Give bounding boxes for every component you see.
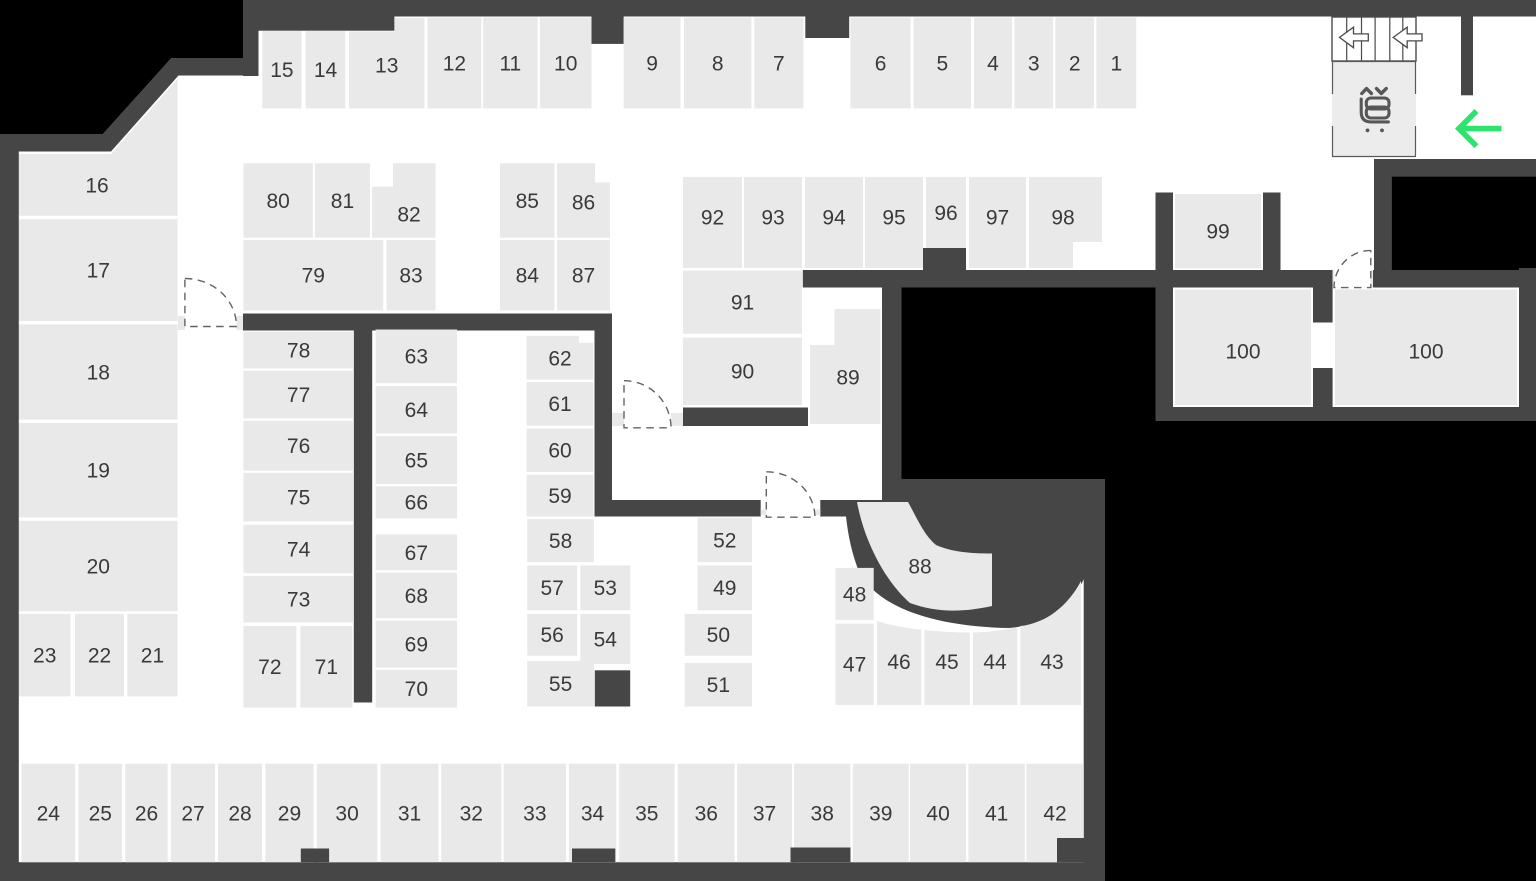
svg-text:42: 42 — [1043, 802, 1066, 825]
svg-text:50: 50 — [707, 624, 730, 647]
svg-text:13: 13 — [375, 54, 398, 77]
svg-text:38: 38 — [811, 802, 834, 825]
svg-text:36: 36 — [695, 802, 718, 825]
svg-text:97: 97 — [986, 206, 1009, 229]
svg-text:8: 8 — [712, 52, 724, 75]
svg-text:23: 23 — [33, 645, 56, 668]
svg-text:49: 49 — [713, 577, 736, 600]
svg-text:99: 99 — [1206, 221, 1229, 244]
svg-text:80: 80 — [266, 190, 289, 213]
svg-text:70: 70 — [405, 678, 428, 701]
svg-text:24: 24 — [37, 802, 61, 825]
svg-text:62: 62 — [548, 347, 571, 370]
svg-text:93: 93 — [761, 206, 784, 229]
svg-text:52: 52 — [713, 529, 736, 552]
svg-text:29: 29 — [278, 802, 301, 825]
svg-text:35: 35 — [635, 802, 658, 825]
svg-text:74: 74 — [287, 538, 311, 561]
svg-text:16: 16 — [85, 174, 108, 197]
svg-text:10: 10 — [554, 52, 577, 75]
svg-text:98: 98 — [1051, 206, 1074, 229]
svg-text:26: 26 — [135, 802, 158, 825]
svg-text:9: 9 — [646, 52, 658, 75]
svg-text:5: 5 — [936, 52, 948, 75]
svg-text:31: 31 — [398, 802, 421, 825]
svg-text:55: 55 — [549, 673, 572, 696]
svg-text:82: 82 — [397, 203, 420, 226]
svg-text:83: 83 — [399, 265, 422, 288]
svg-text:72: 72 — [258, 656, 281, 679]
svg-text:44: 44 — [983, 651, 1007, 674]
svg-text:33: 33 — [523, 802, 546, 825]
svg-text:20: 20 — [87, 555, 110, 578]
svg-text:100: 100 — [1408, 340, 1443, 363]
svg-text:96: 96 — [934, 202, 957, 225]
svg-text:43: 43 — [1040, 651, 1063, 674]
svg-text:100: 100 — [1225, 340, 1260, 363]
svg-text:4: 4 — [987, 52, 999, 75]
svg-text:87: 87 — [572, 265, 595, 288]
svg-text:47: 47 — [843, 654, 866, 677]
svg-text:46: 46 — [887, 651, 910, 674]
svg-text:79: 79 — [302, 265, 325, 288]
svg-text:88: 88 — [908, 555, 931, 578]
svg-text:94: 94 — [822, 206, 846, 229]
svg-text:22: 22 — [88, 645, 111, 668]
svg-text:1: 1 — [1110, 52, 1122, 75]
svg-text:12: 12 — [443, 52, 466, 75]
svg-text:34: 34 — [581, 802, 605, 825]
svg-text:19: 19 — [87, 460, 110, 483]
svg-text:54: 54 — [594, 628, 618, 651]
svg-text:40: 40 — [926, 802, 949, 825]
svg-text:11: 11 — [499, 52, 521, 75]
svg-text:56: 56 — [540, 624, 563, 647]
svg-text:28: 28 — [228, 802, 251, 825]
svg-text:75: 75 — [287, 486, 310, 509]
svg-text:14: 14 — [314, 59, 338, 82]
svg-text:69: 69 — [405, 633, 428, 656]
svg-text:53: 53 — [594, 577, 617, 600]
svg-text:91: 91 — [731, 292, 754, 315]
svg-text:64: 64 — [405, 399, 429, 422]
svg-text:73: 73 — [287, 589, 310, 612]
svg-text:45: 45 — [935, 651, 958, 674]
svg-text:63: 63 — [405, 346, 428, 369]
svg-text:32: 32 — [460, 802, 483, 825]
svg-text:25: 25 — [89, 802, 112, 825]
svg-text:6: 6 — [875, 52, 887, 75]
svg-text:67: 67 — [405, 542, 428, 565]
svg-text:39: 39 — [869, 802, 892, 825]
svg-text:58: 58 — [549, 530, 572, 553]
svg-text:89: 89 — [836, 366, 859, 389]
svg-text:84: 84 — [516, 265, 540, 288]
svg-text:17: 17 — [87, 259, 110, 282]
svg-text:66: 66 — [405, 492, 428, 515]
svg-text:3: 3 — [1028, 52, 1040, 75]
svg-text:92: 92 — [701, 206, 724, 229]
svg-text:71: 71 — [315, 656, 338, 679]
svg-text:60: 60 — [548, 440, 571, 463]
svg-text:21: 21 — [141, 645, 164, 668]
svg-text:7: 7 — [773, 52, 785, 75]
svg-text:77: 77 — [287, 384, 310, 407]
svg-text:68: 68 — [405, 585, 428, 608]
svg-text:76: 76 — [287, 435, 310, 458]
svg-text:86: 86 — [572, 191, 595, 214]
svg-text:18: 18 — [87, 361, 110, 384]
svg-text:81: 81 — [331, 190, 354, 213]
svg-text:85: 85 — [516, 190, 539, 213]
svg-text:90: 90 — [731, 361, 754, 384]
svg-text:37: 37 — [753, 802, 776, 825]
svg-text:27: 27 — [181, 802, 204, 825]
svg-text:51: 51 — [707, 674, 730, 697]
svg-text:2: 2 — [1069, 52, 1081, 75]
svg-text:59: 59 — [548, 485, 571, 508]
svg-text:95: 95 — [882, 206, 905, 229]
svg-text:48: 48 — [843, 583, 866, 606]
svg-text:15: 15 — [270, 59, 293, 82]
svg-text:61: 61 — [548, 393, 571, 416]
svg-text:30: 30 — [335, 802, 358, 825]
svg-text:57: 57 — [540, 577, 563, 600]
svg-text:41: 41 — [985, 802, 1008, 825]
svg-text:65: 65 — [405, 449, 428, 472]
svg-text:78: 78 — [287, 339, 310, 362]
